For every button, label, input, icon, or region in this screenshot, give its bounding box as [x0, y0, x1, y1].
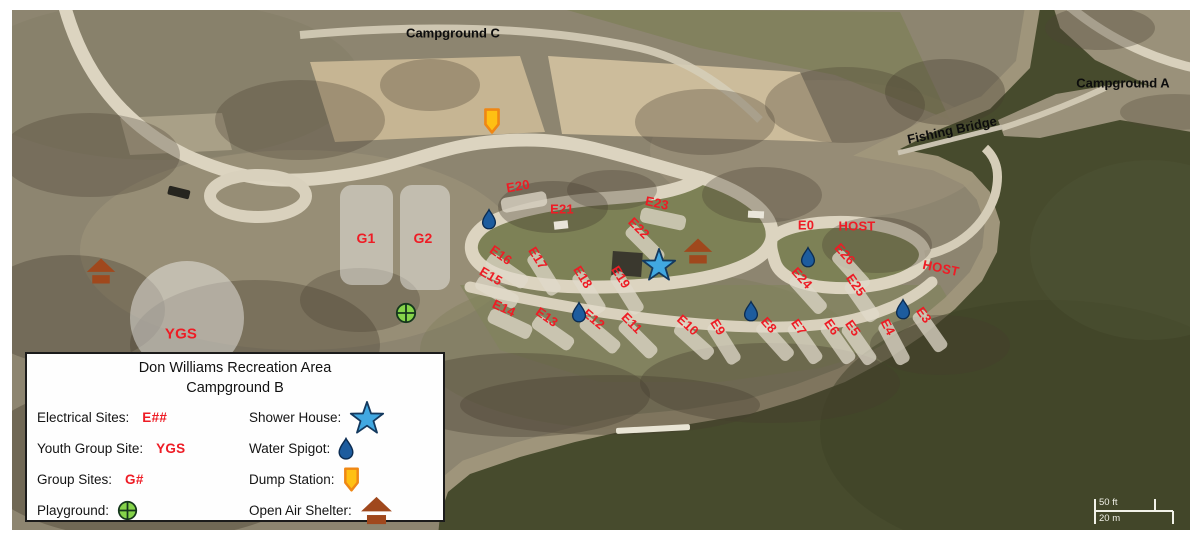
site-label-host: HOST: [922, 258, 961, 278]
group-site-label-g1: G1: [356, 231, 375, 245]
legend-label: Open Air Shelter:: [249, 503, 352, 518]
legend-row-group-sites: Group Sites:G#: [37, 464, 249, 495]
legend-row-playground: Playground:: [37, 495, 249, 526]
water-spigot-icon: [482, 208, 497, 230]
legend-subtitle: Campground B: [37, 379, 433, 399]
frame-top: [0, 0, 1200, 10]
open-air-shelter-legend-icon: [360, 496, 393, 525]
open-air-shelter-icon: [683, 238, 713, 265]
area-label-campground-a: Campground A: [1076, 77, 1169, 90]
legend-label: Group Sites:: [37, 472, 112, 487]
water-spigot-icon: [896, 298, 911, 320]
legend-grid: Electrical Sites:E##Youth Group Site:YGS…: [37, 402, 433, 526]
water-spigot-icon: [801, 246, 816, 268]
legend-row-electrical-sites: Electrical Sites:E##: [37, 402, 249, 433]
legend-label: Shower House:: [249, 410, 341, 425]
legend-row-open-air-shelter: Open Air Shelter:: [249, 495, 433, 526]
site-label-e20: E20: [505, 178, 531, 195]
shower-house-icon: [641, 248, 677, 282]
frame-left: [0, 0, 12, 553]
frame-right: [1190, 0, 1200, 553]
playground-icon: [395, 302, 417, 324]
scale-bar: 50 ft 20 m: [1092, 492, 1180, 530]
legend-value: E##: [142, 410, 167, 425]
playground-legend-icon: [117, 500, 138, 521]
area-label-campground-c: Campground C: [406, 27, 500, 40]
legend-panel: Don Williams Recreation Area Campground …: [25, 352, 445, 522]
site-label-e0: E0: [798, 219, 814, 232]
legend-row-dump-station: Dump Station:: [249, 464, 433, 495]
campground-map: G1G2YGSE20E21E23E22E16E17E15E18E19E14E13…: [0, 0, 1200, 553]
legend-left-column: Electrical Sites:E##Youth Group Site:YGS…: [37, 402, 249, 526]
dump-station-legend-icon: [343, 466, 360, 493]
frame-bottom: [0, 530, 1200, 553]
water-spigot-legend-icon: [338, 437, 354, 460]
area-label-fishing-bridge: Fishing Bridge: [906, 114, 998, 146]
legend-label: Electrical Sites:: [37, 410, 129, 425]
legend-row-water-spigot: Water Spigot:: [249, 433, 433, 464]
legend-label: Dump Station:: [249, 472, 335, 487]
legend-value: YGS: [156, 441, 185, 456]
water-spigot-icon: [572, 301, 587, 323]
water-spigot-icon: [744, 300, 759, 322]
youth-group-site-label: YGS: [165, 327, 197, 342]
legend-title: Don Williams Recreation Area: [37, 359, 433, 379]
scale-feet-label: 50 ft: [1099, 498, 1118, 508]
open-air-shelter-icon: [86, 258, 116, 285]
site-label-host: HOST: [839, 220, 876, 233]
dump-station-icon: [483, 107, 501, 136]
scale-meters-label: 20 m: [1099, 514, 1120, 524]
site-label-e21: E21: [550, 203, 574, 216]
shower-house-legend-icon: [349, 401, 385, 435]
legend-label: Youth Group Site:: [37, 441, 143, 456]
legend-row-shower-house: Shower House:: [249, 402, 433, 433]
legend-label: Playground:: [37, 503, 109, 518]
legend-row-youth-group-site: Youth Group Site:YGS: [37, 433, 249, 464]
group-site-label-g2: G2: [413, 231, 432, 245]
legend-label: Water Spigot:: [249, 441, 330, 456]
legend-right-column: Shower House:Water Spigot:Dump Station:O…: [249, 402, 433, 526]
legend-value: G#: [125, 472, 144, 487]
